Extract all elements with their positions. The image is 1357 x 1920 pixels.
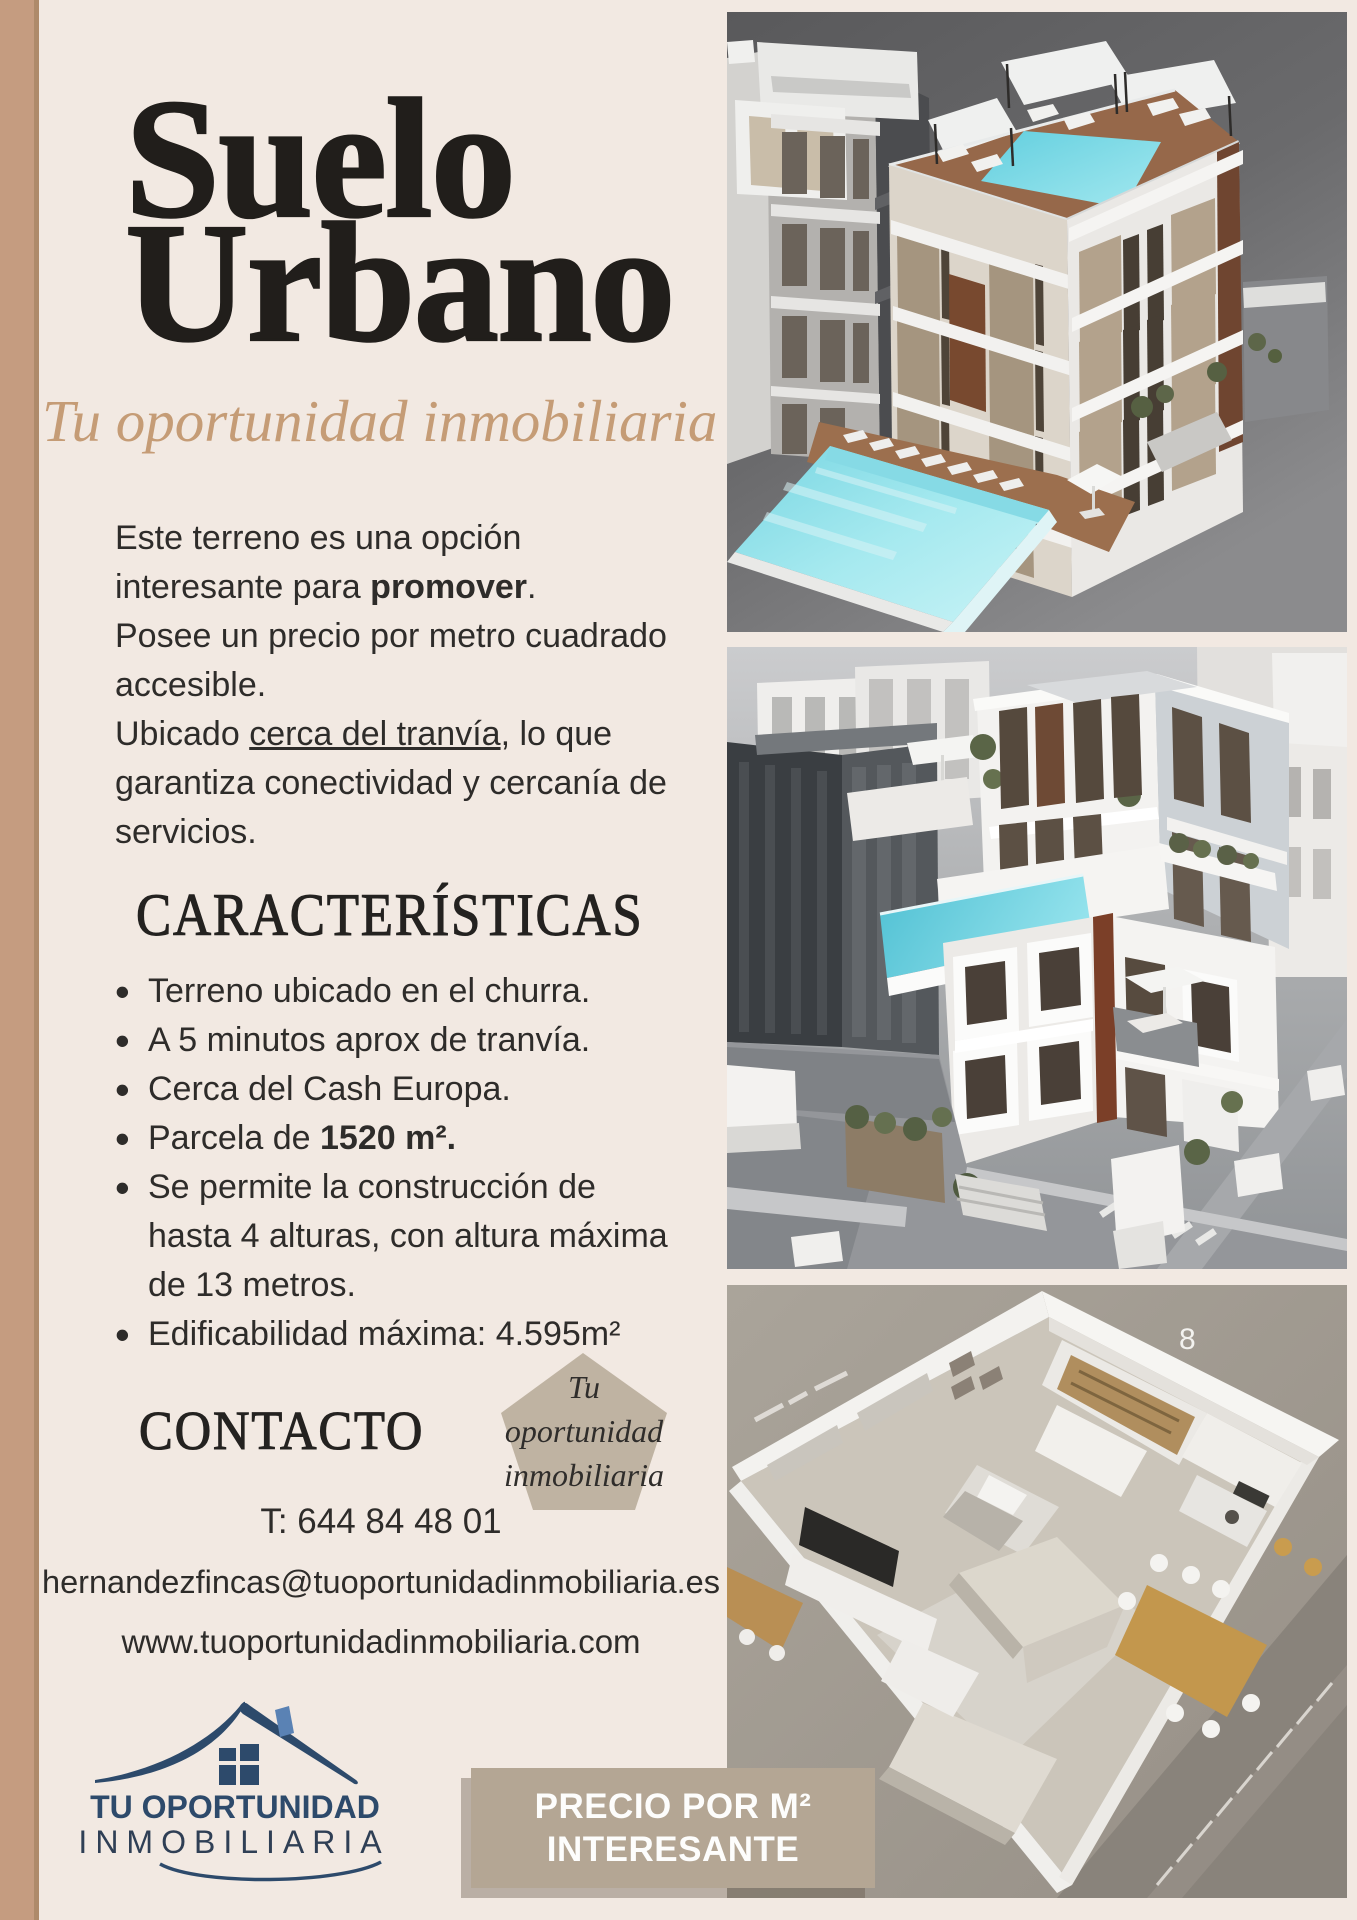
svg-text:8: 8	[1179, 1323, 1196, 1356]
svg-text:inmobiliaria: inmobiliaria	[504, 1457, 664, 1493]
svg-text:oportunidad: oportunidad	[505, 1413, 664, 1449]
svg-text:Tu: Tu	[568, 1369, 600, 1405]
svg-text:TU OPORTUNIDAD: TU OPORTUNIDAD	[90, 1789, 380, 1825]
svg-text:INMOBILIARIA: INMOBILIARIA	[78, 1824, 389, 1860]
